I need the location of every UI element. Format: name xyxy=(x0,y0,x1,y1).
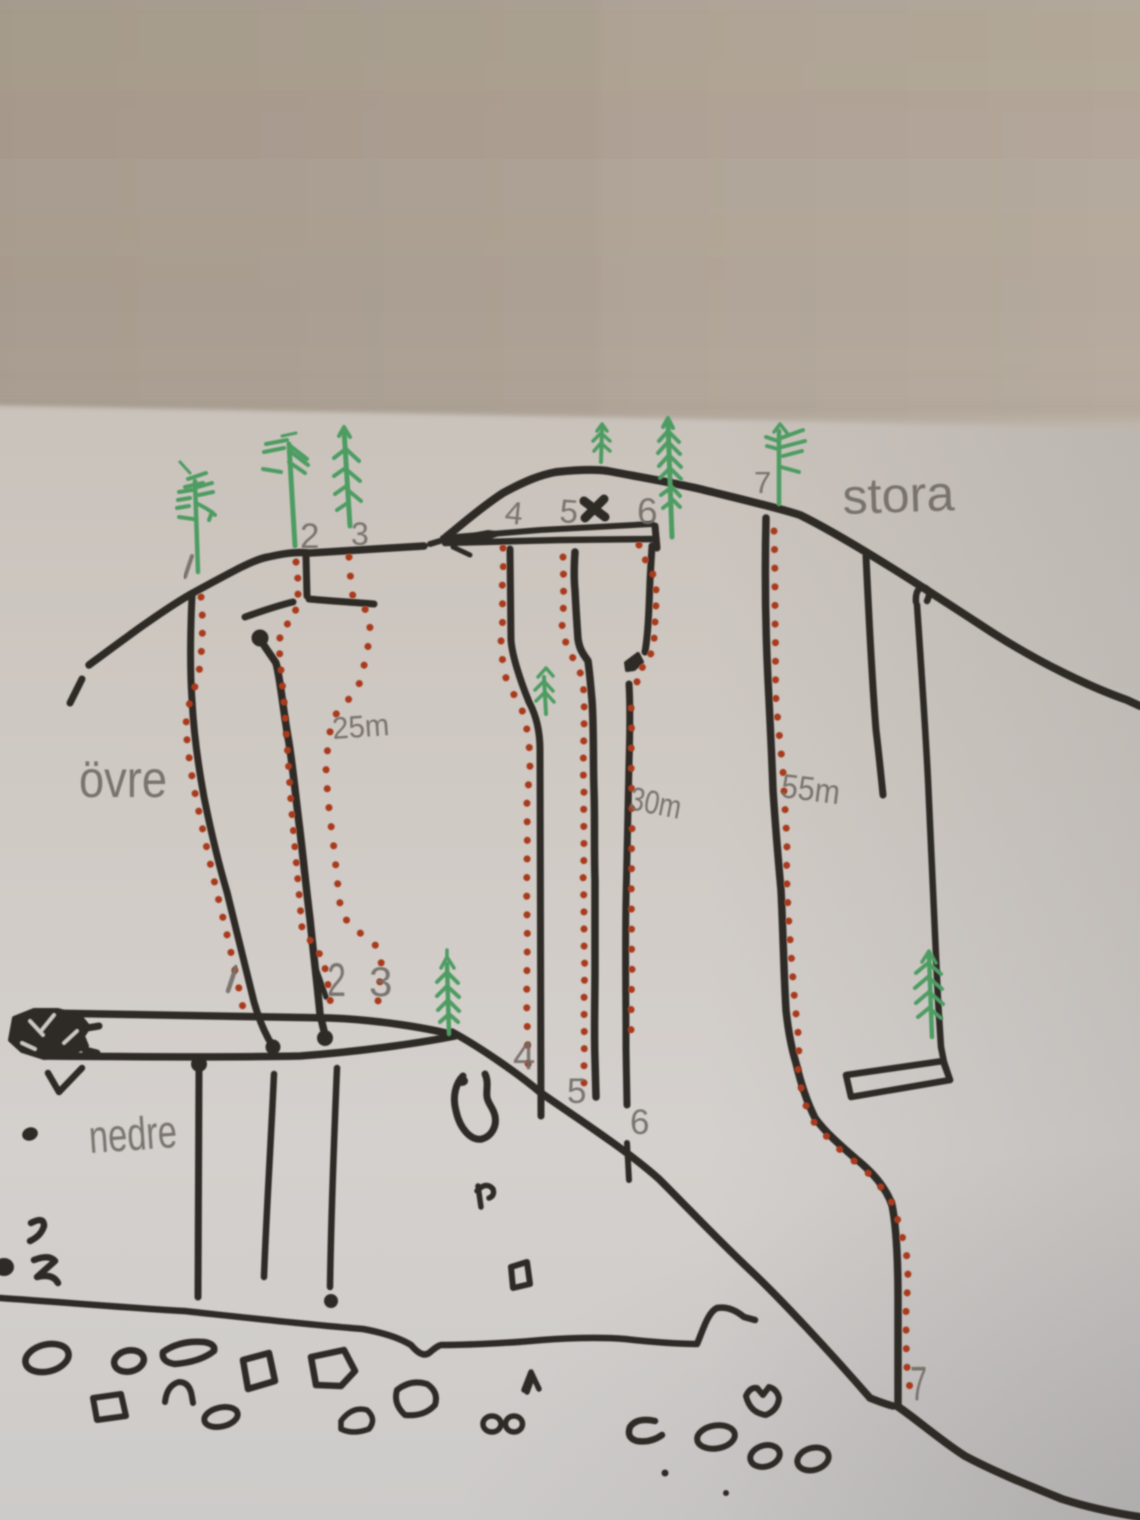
svg-text:nedre: nedre xyxy=(87,1105,178,1163)
svg-text:7: 7 xyxy=(754,465,771,500)
svg-text:övre: övre xyxy=(79,751,167,809)
svg-text:3: 3 xyxy=(369,958,392,1005)
svg-text:55m: 55m xyxy=(779,767,842,812)
svg-text:5: 5 xyxy=(567,1072,586,1111)
svg-text:25m: 25m xyxy=(331,707,390,746)
svg-text:3: 3 xyxy=(351,516,369,552)
svg-text:6: 6 xyxy=(630,1103,649,1142)
svg-text:4: 4 xyxy=(503,494,524,532)
svg-text:2: 2 xyxy=(327,953,346,1006)
svg-text:stora: stora xyxy=(841,465,955,525)
svg-text:2: 2 xyxy=(300,517,319,556)
svg-text:7: 7 xyxy=(910,1358,927,1411)
svg-text:5: 5 xyxy=(559,492,580,530)
svg-text:6: 6 xyxy=(637,491,658,532)
svg-text:4: 4 xyxy=(513,1034,535,1078)
